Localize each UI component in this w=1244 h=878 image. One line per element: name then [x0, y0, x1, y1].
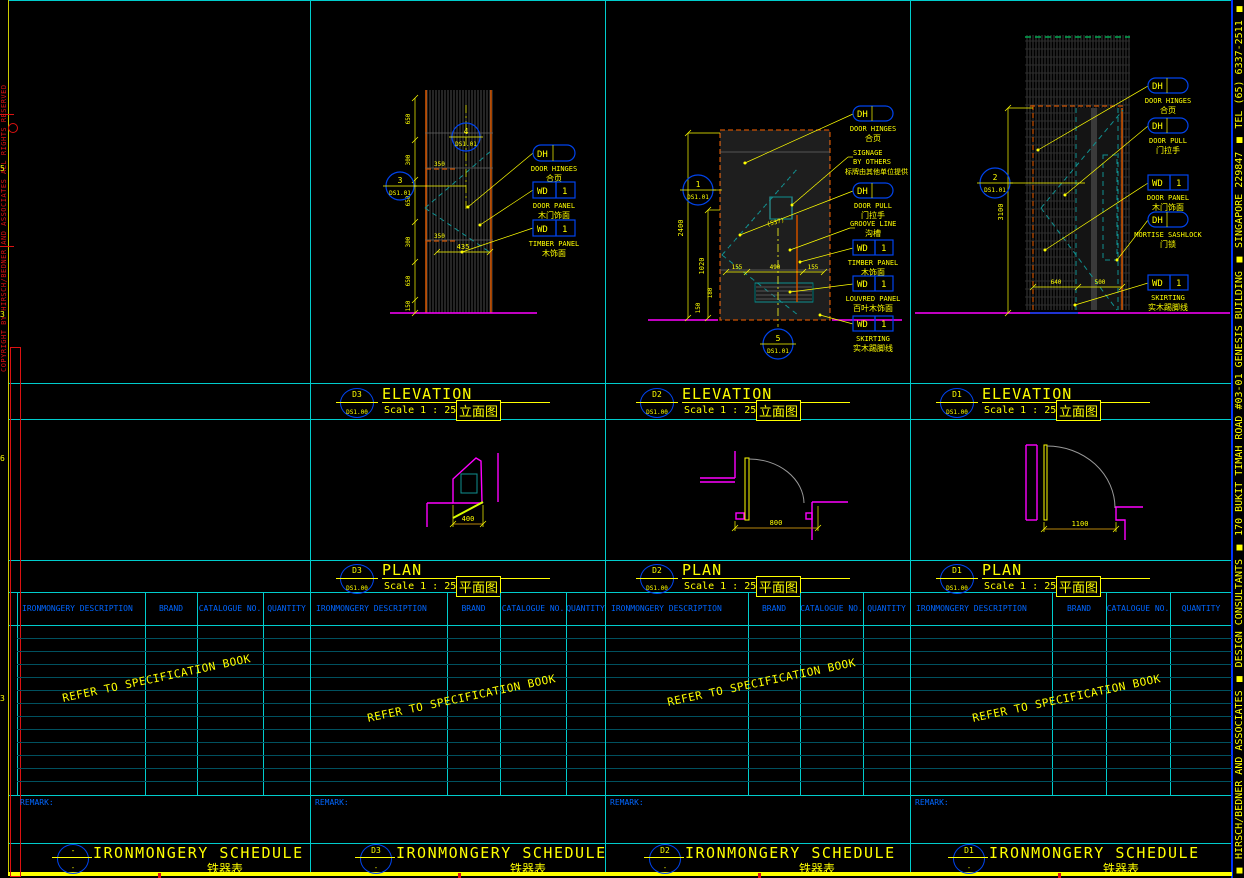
svg-text:TIMBER PANEL: TIMBER PANEL	[848, 259, 899, 267]
svg-text:1: 1	[562, 225, 567, 235]
detail-bubble: D1 DS1.00	[940, 564, 974, 594]
door-swing-arc	[749, 459, 804, 503]
view-title-cn: 立面图	[1056, 400, 1101, 421]
elevation-d1-label: D1 DS1.00 ELEVATION Scale 1 : 25 立面图	[940, 386, 1200, 420]
svg-text:木饰面: 木饰面	[542, 248, 566, 258]
svg-text:3100: 3100	[997, 204, 1005, 221]
col-header-catalogue: CATALOGUE NO.	[1106, 594, 1170, 624]
schedule-title-block: D1 - IRONMONGERY SCHEDULE 铁器表	[953, 844, 1244, 878]
company-vertical-text: ■ HIRSCH/BEDNER AND ASSOCIATES ■ DESIGN …	[1234, 2, 1244, 876]
plan-d3-drawing: 400	[310, 420, 605, 560]
schedule-title-block: - - IRONMONGERY SCHEDULE 铁器表	[57, 844, 357, 878]
svg-text:2400: 2400	[677, 220, 685, 237]
svg-text:WD: WD	[857, 244, 868, 254]
svg-text:实木踢脚线: 实木踢脚线	[853, 343, 893, 353]
ruler-mark: 3	[0, 310, 5, 319]
col-header-description: IRONMONGERY DESCRIPTION	[916, 594, 1048, 624]
svg-text:155: 155	[808, 264, 819, 271]
svg-text:MORTISE SASHLOCK: MORTISE SASHLOCK	[1134, 231, 1202, 239]
plan-d1-label: D1 DS1.00 PLAN Scale 1 : 25 平面图	[940, 562, 1200, 596]
plan-d1-drawing: 1100	[910, 420, 1232, 560]
cad-sheet: COPYRIGHT BY HIRSCH/BEDNER AND ASSOCIATE…	[0, 0, 1244, 878]
elevation-d1-drawing: 3100 640 500 2 DS1.01 DH DOOR HINGES 合页	[910, 0, 1232, 383]
door-leaf	[745, 458, 749, 520]
door-panel	[720, 130, 830, 327]
schedule-title-cn: 铁器表	[510, 860, 546, 877]
elevation-d2-drawing: 2400 1020 180 150 (537) 155 490 155 1 DS…	[605, 0, 910, 383]
door-swing-arc	[1047, 446, 1115, 508]
svg-text:490: 490	[770, 264, 781, 271]
detail-bubble: D2 -	[649, 844, 681, 874]
svg-text:WD: WD	[857, 280, 868, 290]
svg-text:DH: DH	[857, 110, 868, 120]
svg-text:3: 3	[398, 176, 403, 185]
svg-text:640: 640	[1051, 279, 1062, 286]
svg-text:5: 5	[776, 334, 781, 343]
svg-text:DH: DH	[1152, 216, 1163, 226]
svg-text:WD: WD	[857, 320, 868, 330]
svg-text:木门饰面: 木门饰面	[1152, 202, 1184, 212]
svg-text:1100: 1100	[1072, 520, 1089, 528]
svg-text:BY OTHERS: BY OTHERS	[853, 158, 891, 166]
svg-text:SKIRTING: SKIRTING	[1151, 294, 1185, 302]
col-header-quantity: QUANTITY	[566, 594, 605, 624]
svg-text:SKIRTING: SKIRTING	[856, 335, 890, 343]
col-header-catalogue: CATALOGUE NO.	[500, 594, 566, 624]
ruler-mark: 5	[0, 164, 5, 173]
svg-text:DH: DH	[857, 187, 868, 197]
svg-text:1: 1	[1176, 279, 1181, 289]
svg-text:500: 500	[1095, 279, 1106, 286]
svg-text:1: 1	[696, 180, 701, 189]
table-body	[911, 626, 1232, 794]
svg-text:300: 300	[405, 236, 412, 247]
svg-text:155: 155	[732, 264, 743, 271]
col-header-quantity: QUANTITY	[1170, 594, 1232, 624]
remark-label: REMARK:	[915, 798, 949, 807]
col-header-quantity: QUANTITY	[263, 594, 310, 624]
svg-text:实木踢脚线: 实木踢脚线	[1148, 302, 1188, 312]
svg-text:WD: WD	[1152, 179, 1163, 189]
col-header-brand: BRAND	[145, 594, 197, 624]
grid-line	[8, 560, 1232, 561]
remark-label: REMARK:	[20, 798, 54, 807]
schedule-title-cn: 铁器表	[207, 860, 243, 877]
svg-text:DH: DH	[537, 150, 548, 160]
svg-text:门锁: 门锁	[1160, 239, 1176, 249]
svg-text:门拉手: 门拉手	[1156, 145, 1180, 155]
svg-text:SIGNAGE: SIGNAGE	[853, 149, 883, 157]
door-panel	[425, 90, 493, 313]
svg-text:1: 1	[881, 280, 886, 290]
schedule-title: IRONMONGERY SCHEDULE	[989, 844, 1200, 862]
detail-bubble: D3 DS1.00	[340, 564, 374, 594]
plan-d2-drawing: 800	[605, 420, 910, 560]
view-title: PLAN	[982, 561, 1022, 579]
svg-text:DH: DH	[1152, 122, 1163, 132]
svg-text:2: 2	[993, 173, 998, 182]
svg-text:800: 800	[770, 519, 783, 527]
svg-text:GROOVE LINE: GROOVE LINE	[850, 220, 896, 228]
svg-text:DS1.01: DS1.01	[687, 194, 709, 201]
svg-text:1: 1	[562, 187, 567, 197]
col-header-brand: BRAND	[1052, 594, 1106, 624]
detail-bubble: D3 -	[360, 844, 392, 874]
svg-text:DOOR HINGES: DOOR HINGES	[1145, 97, 1191, 105]
plan-d3-label: D3 DS1.00 PLAN Scale 1 : 25 平面图	[340, 562, 600, 596]
table-body	[606, 626, 910, 794]
schedule-title-block: D3 - IRONMONGERY SCHEDULE 铁器表	[360, 844, 660, 878]
svg-text:1: 1	[881, 244, 886, 254]
svg-text:合页: 合页	[865, 133, 881, 143]
view-scale: Scale 1 : 25	[984, 581, 1056, 592]
elevation-d3-drawing: 650 300 650 300 650 150 350 350 435 3 DS…	[310, 0, 605, 383]
svg-text:400: 400	[462, 515, 475, 523]
schedule-title: IRONMONGERY SCHEDULE	[685, 844, 896, 862]
svg-text:350: 350	[434, 233, 445, 240]
ruler-mark: 3	[0, 694, 5, 703]
view-scale: Scale 1 : 25	[984, 405, 1056, 416]
svg-text:LOUVRED PANEL: LOUVRED PANEL	[846, 295, 901, 303]
ruler-mark: 6	[0, 454, 5, 463]
svg-text:300: 300	[405, 154, 412, 165]
svg-text:WD: WD	[1152, 279, 1163, 289]
svg-text:合页: 合页	[1160, 105, 1176, 115]
svg-text:350: 350	[434, 161, 445, 168]
door-leaf	[1044, 445, 1047, 520]
wall-and-door	[1025, 35, 1130, 313]
svg-text:DOOR HINGES: DOOR HINGES	[531, 165, 577, 173]
svg-text:4: 4	[464, 127, 469, 136]
svg-text:沟槽: 沟槽	[865, 228, 881, 238]
svg-text:DOOR PULL: DOOR PULL	[1149, 137, 1187, 145]
svg-text:WD: WD	[537, 225, 548, 235]
grid-line	[8, 795, 1232, 796]
schedule-title-block: D2 - IRONMONGERY SCHEDULE 铁器表	[649, 844, 949, 878]
detail-bubble: D2 DS1.00	[640, 564, 674, 594]
schedule-title: IRONMONGERY SCHEDULE	[93, 844, 304, 862]
ruler-red-tick	[0, 246, 14, 247]
svg-text:门拉手: 门拉手	[861, 210, 885, 220]
view-title: PLAN	[682, 561, 722, 579]
plan-dimension: 1100	[1041, 520, 1119, 532]
col-header-description: IRONMONGERY DESCRIPTION	[611, 594, 744, 624]
north-symbol	[8, 123, 18, 133]
view-scale: Scale 1 : 25	[384, 405, 456, 416]
plan-d2-label: D2 DS1.00 PLAN Scale 1 : 25 平面图	[640, 562, 900, 596]
detail-bubble: 5 DS1.01	[760, 329, 796, 359]
grid-line	[8, 383, 1232, 384]
detail-bubble: D1 -	[953, 844, 985, 874]
detail-bubble: D2 DS1.00	[640, 388, 674, 418]
svg-text:木门饰面: 木门饰面	[538, 210, 570, 220]
detail-bubble: D1 DS1.00	[940, 388, 974, 418]
svg-text:DS1.01: DS1.01	[767, 348, 789, 355]
col-header-brand: BRAND	[748, 594, 800, 624]
col-header-quantity: QUANTITY	[863, 594, 910, 624]
view-title-cn: 立面图	[456, 400, 501, 421]
col-header-brand: BRAND	[447, 594, 500, 624]
svg-text:150: 150	[405, 300, 412, 311]
svg-text:650: 650	[405, 113, 412, 124]
remark-label: REMARK:	[315, 798, 349, 807]
schedule-title: IRONMONGERY SCHEDULE	[396, 844, 607, 862]
ruler-red-tick	[0, 114, 14, 115]
svg-text:1: 1	[881, 320, 886, 330]
col-header-catalogue: CATALOGUE NO.	[197, 594, 263, 624]
view-scale: Scale 1 : 25	[384, 581, 456, 592]
schedule-title-cn: 铁器表	[799, 860, 835, 877]
svg-text:DS1.01: DS1.01	[389, 190, 411, 197]
detail-bubble: 1 DS1.01	[680, 175, 722, 205]
svg-text:1: 1	[1176, 179, 1181, 189]
schedule-title-cn: 铁器表	[1103, 860, 1139, 877]
view-title-cn: 立面图	[756, 400, 801, 421]
svg-text:DOOR PANEL: DOOR PANEL	[1147, 194, 1189, 202]
svg-text:1020: 1020	[698, 258, 706, 275]
view-scale: Scale 1 : 25	[684, 581, 756, 592]
svg-text:DOOR PULL: DOOR PULL	[854, 202, 892, 210]
svg-text:标牌由其他单位提供: 标牌由其他单位提供	[845, 167, 908, 176]
svg-text:180: 180	[707, 287, 714, 298]
svg-text:WD: WD	[537, 187, 548, 197]
svg-text:百叶木饰面: 百叶木饰面	[853, 303, 893, 313]
col-header-description: IRONMONGERY DESCRIPTION	[316, 594, 444, 624]
elevation-d3-label: D3 DS1.00 ELEVATION Scale 1 : 25 立面图	[340, 386, 600, 420]
detail-bubble: - -	[57, 844, 89, 874]
view-title: PLAN	[382, 561, 422, 579]
svg-text:DH: DH	[1152, 82, 1163, 92]
detail-bubble: D3 DS1.00	[340, 388, 374, 418]
remark-label: REMARK:	[610, 798, 644, 807]
svg-text:DOOR PANEL: DOOR PANEL	[533, 202, 575, 210]
svg-text:DOOR HINGES: DOOR HINGES	[850, 125, 896, 133]
view-scale: Scale 1 : 25	[684, 405, 756, 416]
svg-text:DS1.01: DS1.01	[984, 187, 1006, 194]
elevation-d2-label: D2 DS1.00 ELEVATION Scale 1 : 25 立面图	[640, 386, 900, 420]
col-header-catalogue: CATALOGUE NO.	[800, 594, 863, 624]
svg-text:650: 650	[405, 275, 412, 286]
svg-text:DS1.01: DS1.01	[455, 141, 477, 148]
svg-text:TIMBER PANEL: TIMBER PANEL	[529, 240, 580, 248]
col-header-description: IRONMONGERY DESCRIPTION	[22, 594, 142, 624]
table-body	[311, 626, 605, 794]
svg-text:150: 150	[695, 302, 702, 313]
